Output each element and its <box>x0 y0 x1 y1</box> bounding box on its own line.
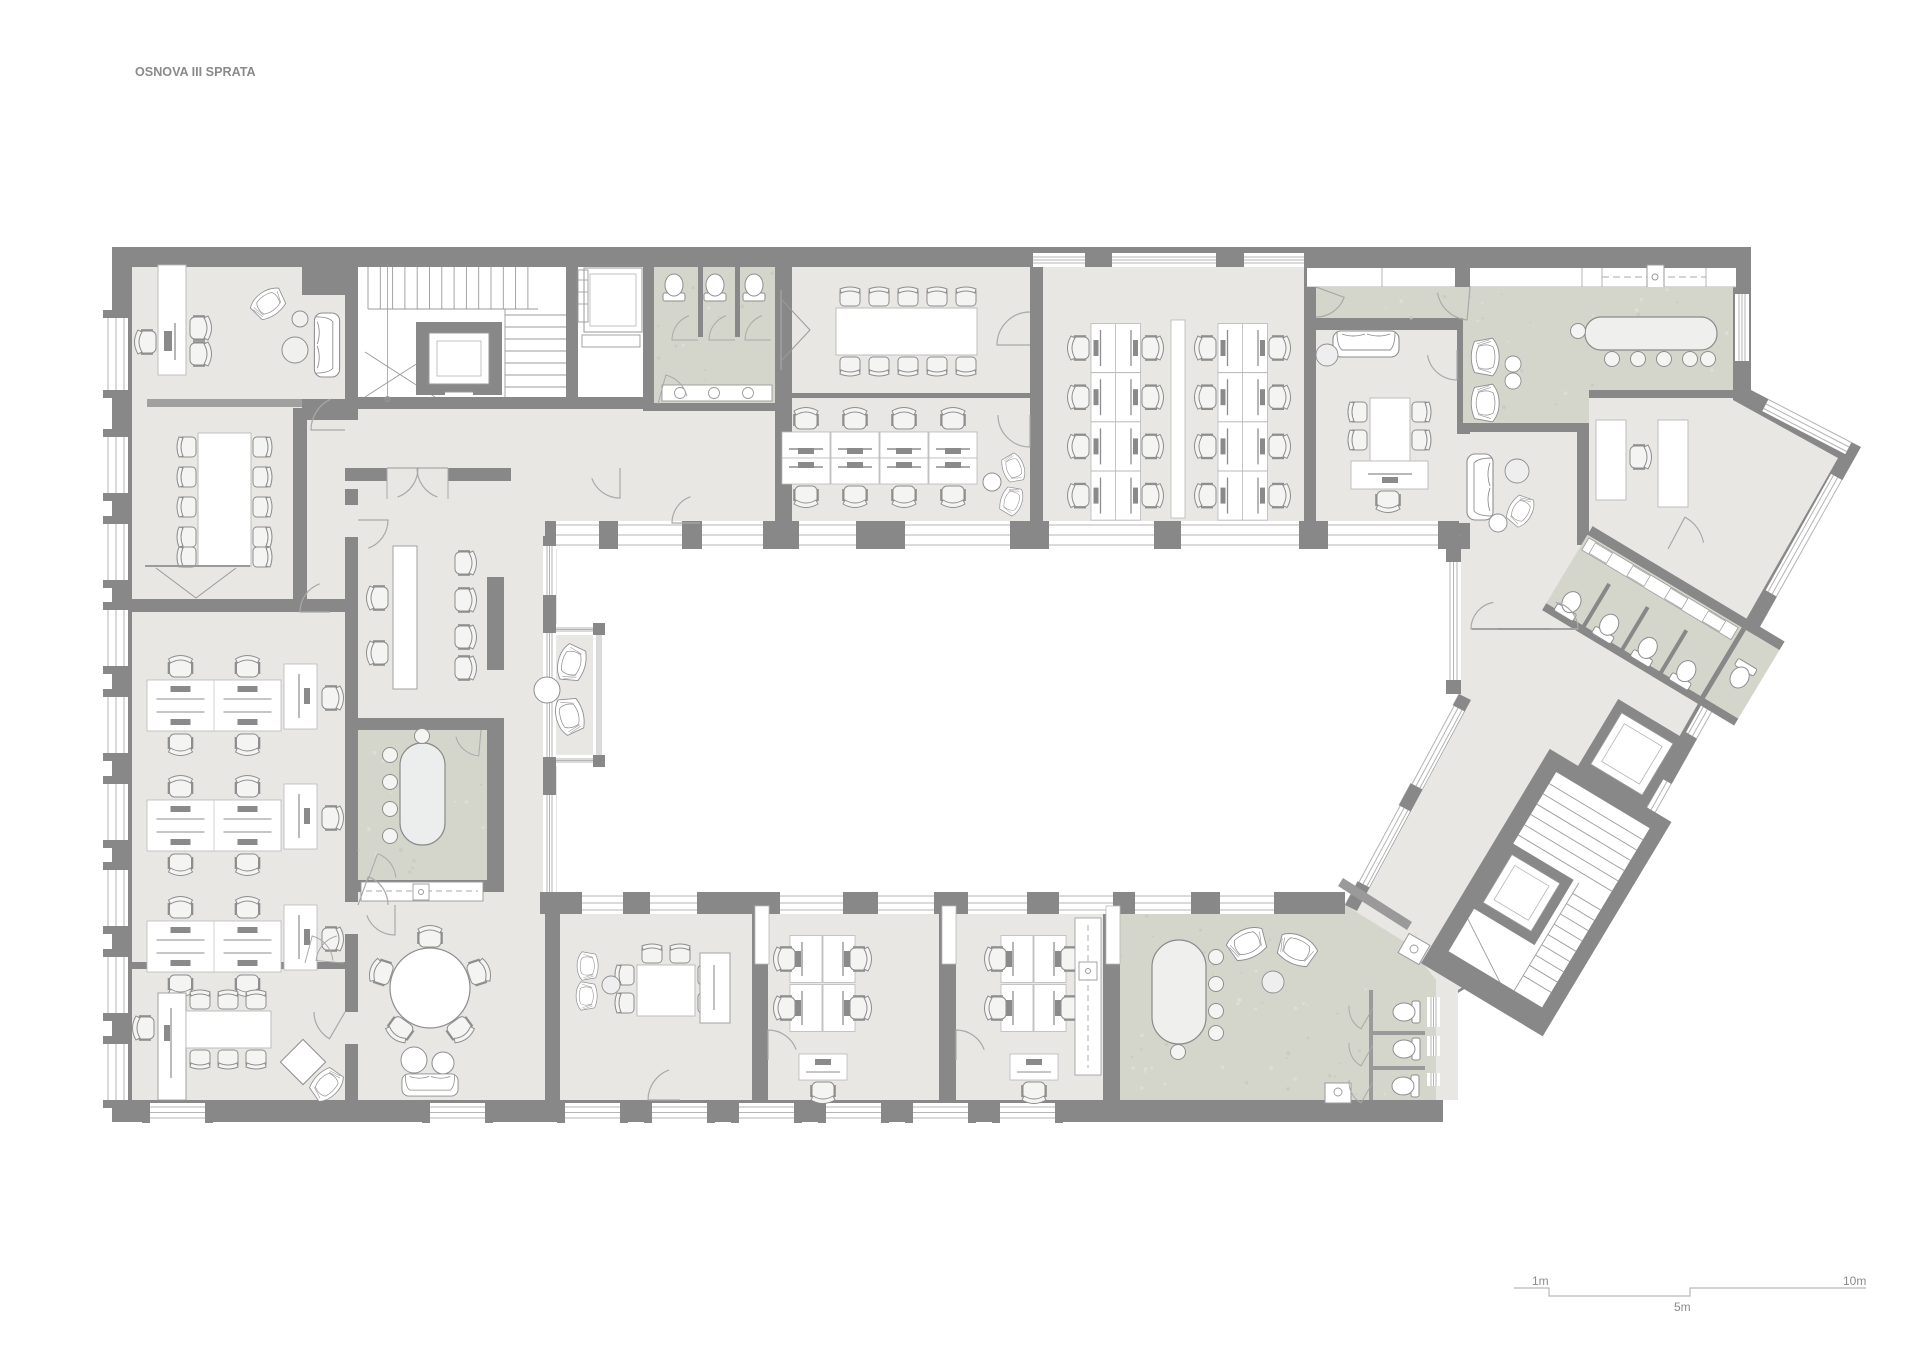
svg-text:OSNOVA III SPRATA: OSNOVA III SPRATA <box>135 65 256 79</box>
svg-text:1m: 1m <box>1532 1274 1549 1288</box>
svg-text:10m: 10m <box>1843 1274 1866 1288</box>
svg-text:5m: 5m <box>1674 1300 1691 1314</box>
